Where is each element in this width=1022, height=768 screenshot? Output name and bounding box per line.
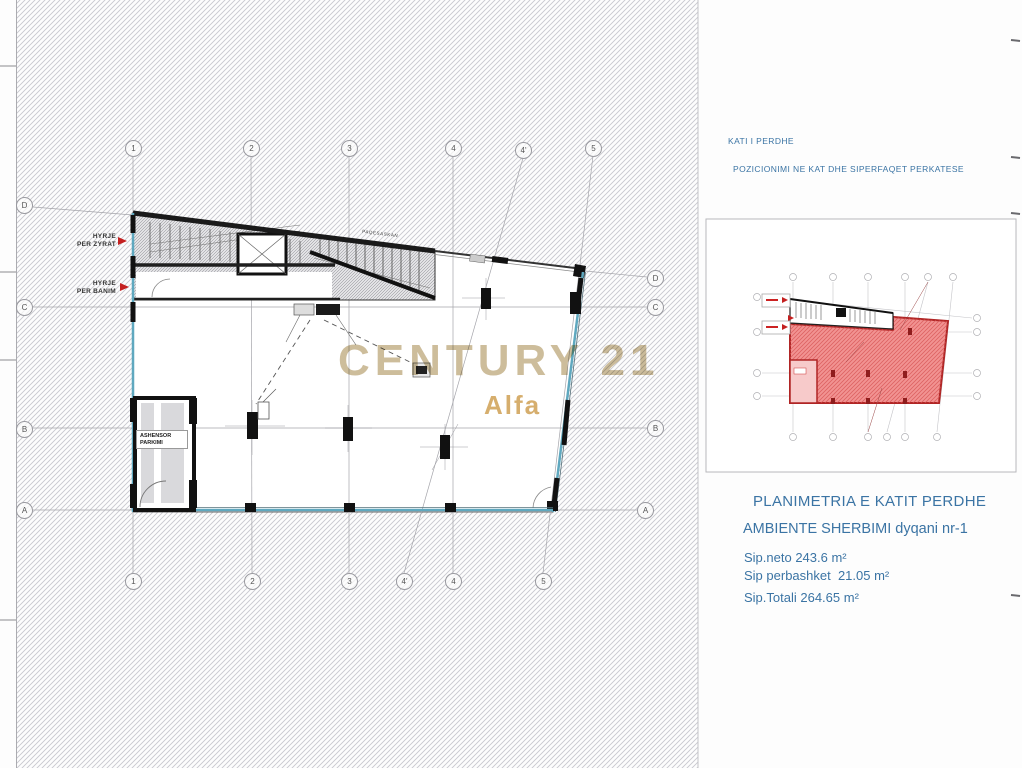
grid-bubble-1: 1 (125, 573, 142, 590)
label-hyrje-zyrat: HYRJEPER ZYRAT (60, 233, 116, 249)
area-net: Sip.neto 243.6 m² (744, 550, 847, 565)
label-hyrje-banim: HYRJEPER BANIM (60, 280, 116, 296)
grid-bubble-D: D (16, 197, 33, 214)
key-plan (706, 219, 1016, 472)
label-line: PER ZYRAT (77, 241, 116, 248)
label-line: HYRJE (93, 280, 116, 287)
watermark-brand: CENTURY 21 (338, 336, 659, 386)
grid-bubble-5: 5 (585, 140, 602, 157)
caption-floor-name: KATI I PERDHE (728, 136, 794, 146)
grid-bubble-C: C (16, 299, 33, 316)
label-ashensor-parkimi: ASHENSORPARKIMI (136, 430, 188, 449)
grid-bubble-B: B (16, 421, 33, 438)
grid-bubble-4': 4' (396, 573, 413, 590)
grid-bubble-1: 1 (125, 140, 142, 157)
label-line: ASHENSOR (140, 433, 171, 439)
plan-subtitle: AMBIENTE SHERBIMI dyqani nr-1 (743, 521, 968, 537)
grid-bubble-2: 2 (244, 573, 261, 590)
grid-bubble-D: D (647, 270, 664, 287)
parking-elevator-room (130, 398, 197, 510)
grid-bubble-B: B (647, 420, 664, 437)
grid-bubble-A: A (637, 502, 654, 519)
grid-bubble-4: 4 (445, 573, 462, 590)
label-line: HYRJE (93, 233, 116, 240)
grid-bubble-4: 4 (445, 140, 462, 157)
grid-bubble-2: 2 (243, 140, 260, 157)
area-shared: Sip perbashket 21.05 m² (744, 568, 889, 583)
grid-bubble-A: A (16, 502, 33, 519)
floorplan-page: CENTURY 21 Alfa HYRJEPER ZYRAT HYRJEPER … (0, 0, 1022, 768)
grid-bubble-3: 3 (341, 140, 358, 157)
watermark-brand-sub: Alfa (484, 390, 541, 421)
plan-title: PLANIMETRIA E KATIT PERDHE (753, 493, 986, 510)
caption-position-note: POZICIONIMI NE KAT DHE SIPERFAQET PERKAT… (733, 164, 964, 174)
label-line: PARKIMI (140, 440, 163, 446)
grid-bubble-5: 5 (535, 573, 552, 590)
area-total: Sip.Totali 264.65 m² (744, 590, 859, 605)
grid-bubble-C: C (647, 299, 664, 316)
grid-bubble-3: 3 (341, 573, 358, 590)
grid-bubble-4': 4' (515, 142, 532, 159)
label-line: PER BANIM (77, 288, 116, 295)
